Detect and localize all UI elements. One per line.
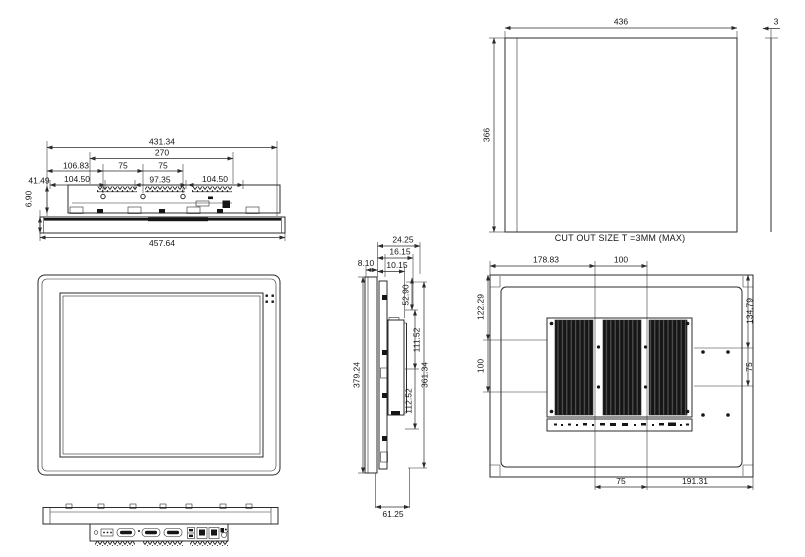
dim-offset-left: 106.83 bbox=[63, 161, 89, 171]
vent-strip bbox=[95, 541, 135, 546]
mount-clamp bbox=[382, 295, 387, 300]
bottom-view-geometry bbox=[43, 504, 278, 546]
front-view bbox=[38, 275, 280, 475]
dim-depth-step-2: 16.15 bbox=[389, 247, 411, 257]
screw-hole bbox=[101, 194, 105, 198]
side-view-extension-lines bbox=[358, 242, 427, 508]
indicator-dots bbox=[266, 295, 274, 303]
dim-rear-left-lower: 100 bbox=[476, 359, 486, 373]
bezel-profile bbox=[365, 277, 377, 473]
front-bezel-outer bbox=[38, 275, 280, 475]
mount-clamp bbox=[382, 350, 387, 355]
dim-height-top: 52.90 bbox=[401, 284, 411, 306]
dim-rear-top-left: 178.83 bbox=[533, 255, 559, 265]
component-block bbox=[196, 201, 209, 206]
dim-module-width: 270 bbox=[155, 148, 169, 158]
dim-rear-bottom-left: 75 bbox=[616, 476, 626, 486]
mount-clamp bbox=[382, 436, 387, 441]
front-bezel-inner bbox=[42, 279, 276, 471]
dim-rear-right-lower: 75 bbox=[744, 362, 754, 372]
component-block bbox=[223, 201, 231, 209]
mount-clamp bbox=[382, 393, 387, 398]
switch bbox=[221, 528, 225, 533]
dim-hole-pitch-2: 75 bbox=[158, 161, 168, 171]
box-foot bbox=[391, 411, 400, 415]
clamp bbox=[97, 209, 103, 214]
rear-view-geometry bbox=[483, 275, 753, 477]
drawing-svg: 431.34 270 106.83 75 75 104.50 97.35 104… bbox=[0, 0, 805, 557]
fin-strip bbox=[97, 187, 137, 192]
component-block bbox=[208, 197, 213, 200]
screw-hole bbox=[181, 194, 185, 198]
io-connectors bbox=[94, 528, 228, 539]
side-view: 24.25 16.15 8.10 10.15 52.90 111.52 112.… bbox=[352, 235, 430, 520]
dim-seg-left: 104.50 bbox=[64, 174, 90, 184]
dim-hole-pitch-1: 75 bbox=[118, 161, 128, 171]
clamp bbox=[159, 209, 165, 214]
dim-body-width: 431.34 bbox=[149, 137, 175, 147]
top-view: 431.34 270 106.83 75 75 104.50 97.35 104… bbox=[24, 137, 286, 249]
screen-outer bbox=[60, 293, 263, 457]
dim-bezel-thickness: 6.90 bbox=[24, 190, 34, 207]
vesa-holes bbox=[701, 350, 730, 417]
power-jack bbox=[94, 531, 98, 535]
mount-bracket bbox=[381, 368, 388, 378]
dim-rear-right-upper: 134.79 bbox=[745, 298, 755, 324]
vent-strip bbox=[190, 541, 228, 546]
screw-hole bbox=[141, 194, 145, 198]
dim-seg-right: 104.50 bbox=[202, 174, 228, 184]
side-view-dimensions: 24.25 16.15 8.10 10.15 52.90 111.52 112.… bbox=[352, 235, 430, 520]
vent-strip bbox=[143, 541, 183, 546]
top-view-dimensions: 431.34 270 106.83 75 75 104.50 97.35 104… bbox=[24, 137, 286, 249]
dim-depth-total: 61.25 bbox=[382, 509, 404, 519]
cutout-note: CUT OUT SIZE T =3MM (MAX) bbox=[555, 233, 686, 243]
rear-view: 178.83 100 122.29 100 134.79 75 75 191.3… bbox=[476, 255, 755, 491]
dim-cutout-width: 436 bbox=[614, 17, 628, 27]
bottom-view bbox=[43, 504, 278, 546]
dim-rear-top-right: 100 bbox=[614, 255, 628, 265]
clamp bbox=[217, 209, 223, 214]
panel-edge-bar bbox=[43, 508, 278, 525]
dim-height-box-lower: 112.52 bbox=[404, 388, 414, 414]
dim-rear-bottom-right: 191.31 bbox=[682, 476, 708, 486]
technical-drawing-sheet: 431.34 270 106.83 75 75 104.50 97.35 104… bbox=[0, 0, 805, 557]
dim-height-rear: 361.34 bbox=[420, 362, 430, 388]
dim-overall-width: 457.64 bbox=[149, 238, 175, 248]
screen-inner bbox=[63, 296, 260, 454]
dim-height-total: 379.24 bbox=[352, 362, 362, 388]
io-strip-marks bbox=[554, 423, 689, 427]
dim-depth-back: 10.15 bbox=[386, 260, 408, 270]
top-view-geometry bbox=[40, 185, 285, 233]
dim-depth: 41.49 bbox=[28, 176, 50, 186]
dim-height-box-upper: 111.52 bbox=[412, 327, 422, 352]
dim-panel-thickness: 3 bbox=[774, 17, 779, 27]
cutout-rect bbox=[505, 38, 737, 232]
dim-depth-front: 8.10 bbox=[358, 258, 375, 268]
dim-seg-center: 97.35 bbox=[149, 175, 171, 185]
heatsink-block bbox=[603, 320, 641, 415]
heatsink-block bbox=[649, 320, 687, 415]
system-box-profile bbox=[388, 320, 404, 415]
dim-rear-left-upper: 122.29 bbox=[476, 294, 486, 320]
dim-cutout-height: 366 bbox=[482, 128, 492, 142]
fin-strip bbox=[192, 187, 232, 192]
mount-bracket bbox=[381, 452, 388, 462]
heatsink-block bbox=[555, 320, 593, 415]
cutout-view: 436 366 3 CUT OUT SIZE T =3MM (MAX) bbox=[482, 17, 781, 244]
dim-depth-step-1: 24.25 bbox=[392, 235, 414, 245]
fin-strip bbox=[145, 187, 185, 192]
